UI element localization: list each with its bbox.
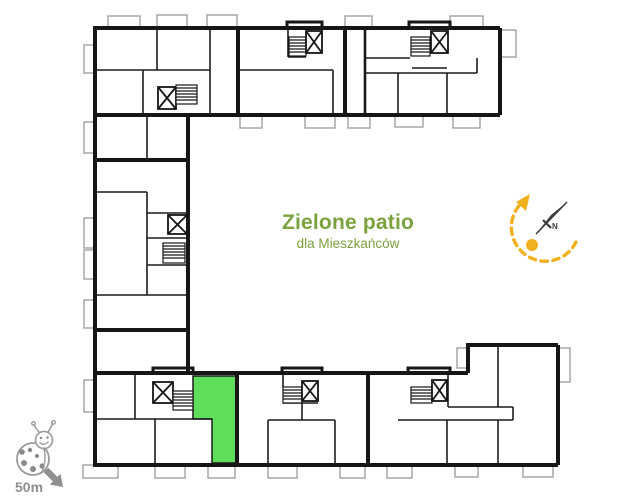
north-label: N (552, 222, 558, 231)
elevator-shaft-icon (153, 382, 173, 403)
balcony (450, 16, 483, 27)
distance-label: 50m (15, 479, 43, 495)
elevator-shaft-icon (306, 31, 322, 53)
elevator-shaft-icon (431, 31, 448, 53)
stairs-icon (283, 387, 302, 403)
balconies (83, 15, 570, 478)
sun-dot (526, 239, 538, 251)
floor-plan-page: N 50m Zielone patio dla Mieszkańców (0, 0, 630, 500)
elevator-shaft-icon (158, 87, 176, 109)
elevator-shaft-icon (168, 215, 187, 234)
elevator-shaft-icon (302, 381, 318, 401)
balcony (500, 30, 516, 57)
stair-cores (153, 22, 450, 410)
stairs-icon (289, 37, 306, 56)
balcony (345, 16, 372, 27)
stairs-icon (163, 243, 185, 263)
floor-plan: N 50m (0, 0, 630, 500)
stairs-icon (411, 387, 432, 403)
stairs-icon (411, 37, 430, 56)
elevator-shaft-icon (432, 380, 447, 401)
ladybug-icon (17, 421, 55, 475)
north-arrow-icon: N (536, 202, 567, 234)
stairs-icon (173, 391, 193, 410)
sun-path-icon (511, 194, 576, 261)
stairs-icon (176, 85, 197, 104)
